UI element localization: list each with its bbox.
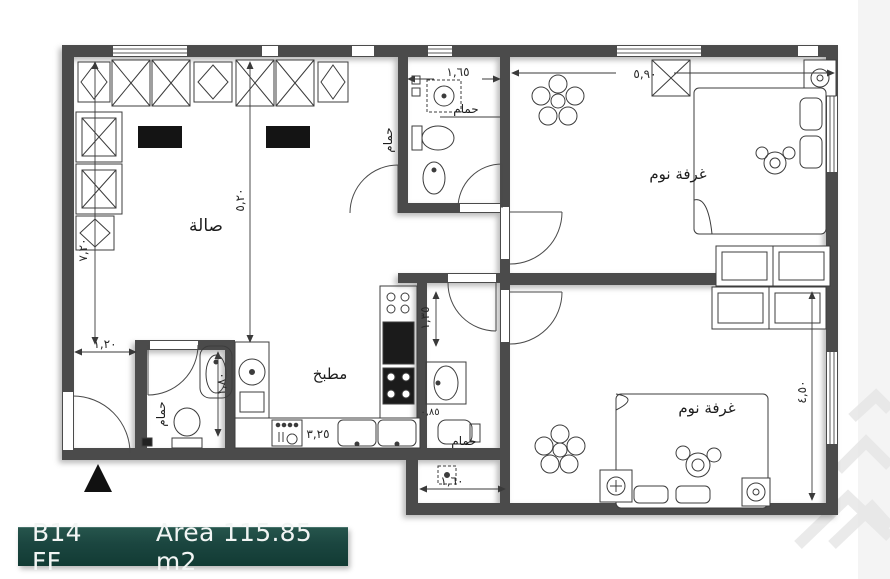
plan-title-bar: B14 FF Area 115.85 m2 — [18, 527, 348, 566]
dim-bath-middle-width: ١,٦٠ — [440, 474, 463, 488]
dim-bath-entry-depth: ١,٨٠ — [214, 372, 228, 395]
entry-bath-door-arc — [148, 345, 198, 395]
page-margin-strip — [858, 0, 890, 579]
label-bath-top-side: حمام — [381, 127, 395, 152]
bedroom-top-door-arc — [510, 212, 562, 264]
area-label: Area 115.85 m2 — [114, 518, 348, 576]
bedroom-bottom-furniture — [535, 287, 826, 508]
label-bedroom-top: غرفة نوم — [649, 165, 706, 183]
label-bath-top: حمام — [453, 102, 478, 116]
top-bath-door-arc — [458, 164, 502, 208]
dim-bath-middle-offset: ٠,٨٥ — [420, 407, 439, 418]
hall-corridor-door-arc — [350, 165, 398, 213]
bathroom-top-fixtures — [412, 76, 461, 194]
plant-doodle — [532, 75, 584, 125]
label-kitchen: مطبخ — [313, 365, 348, 383]
label-hall: صالة — [189, 216, 223, 236]
dim-hall-inner: ٥,٢٠ — [233, 188, 247, 211]
plant-doodle — [535, 425, 585, 473]
entry-door-arc — [73, 396, 130, 453]
label-bedroom-bottom: غرفة نوم — [678, 399, 735, 417]
mid-bath-door-arc — [448, 283, 496, 331]
dim-hall-height: ٧,٢٠ — [76, 238, 90, 261]
dim-bedroom-top-width: ٥,٩٠ — [633, 67, 656, 81]
floor-plan-drawing: ٥,٩٠ ١,٦٥ ٧,٢٠ ٥,٢٠ ١,٢٠ ٣,٢٥ ١,٣٥ ١,٦٠ … — [0, 0, 890, 579]
entry-marker-triangle — [84, 464, 112, 492]
bathroom-entry-fixtures — [142, 346, 232, 448]
dim-bath-top-width: ١,٦٥ — [446, 65, 469, 79]
label-bath-middle: حمام — [451, 434, 476, 448]
label-bath-entry: حمام — [154, 401, 168, 426]
dim-bath-middle-height: ١,٣٥ — [418, 306, 432, 329]
coffee-tables — [138, 126, 310, 148]
bedroom-bottom-door-arc — [510, 292, 562, 344]
dim-bedroom-bottom-height: ٤,٥٠ — [795, 380, 809, 403]
unit-code: B14 FF — [18, 518, 114, 576]
floor-plan-page: ٥,٩٠ ١,٦٥ ٧,٢٠ ٥,٢٠ ١,٢٠ ٣,٢٥ ١,٣٥ ١,٦٠ … — [0, 0, 890, 579]
dim-entry-width: ١,٢٠ — [93, 337, 116, 351]
dim-kitchen-width: ٣,٢٥ — [306, 427, 329, 441]
bathroom-middle-fixtures — [426, 362, 480, 484]
